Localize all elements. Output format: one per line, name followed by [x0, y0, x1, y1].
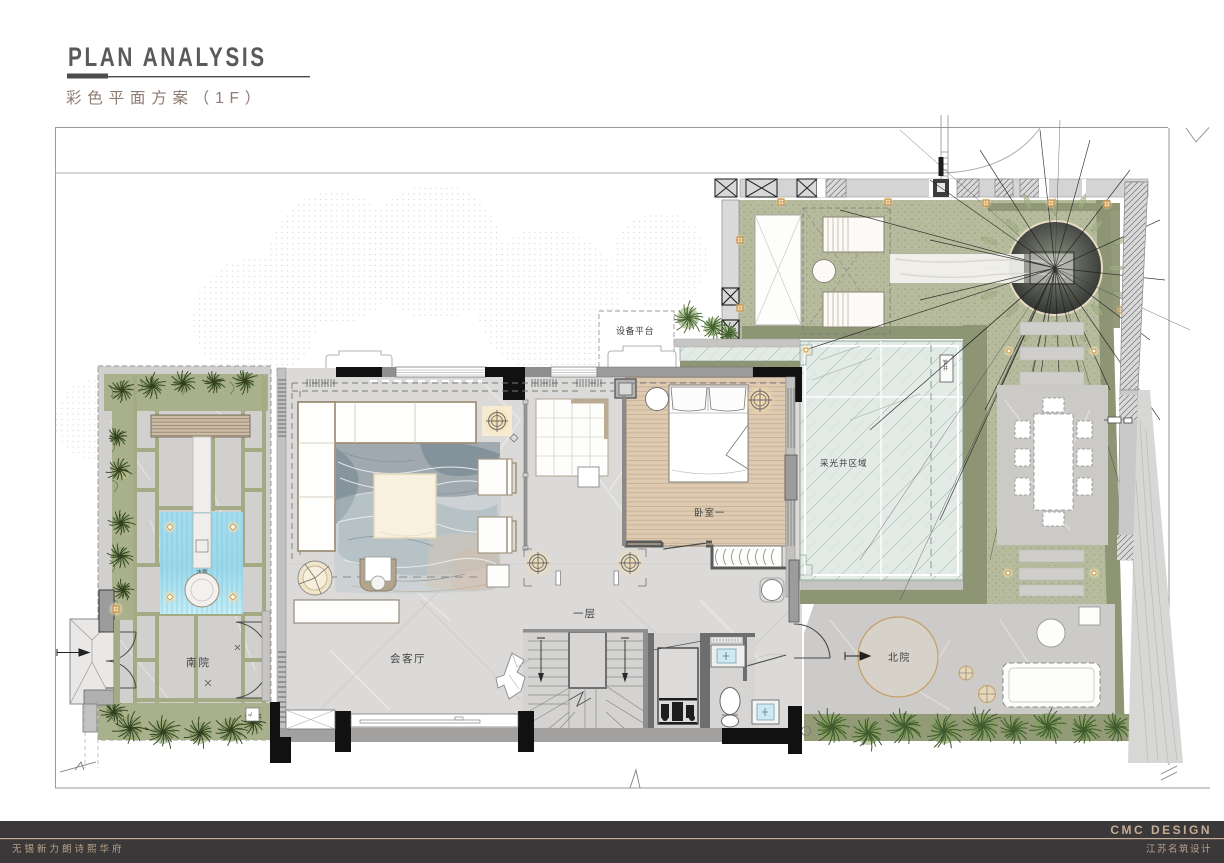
svg-text:PLAN ANALYSIS: PLAN ANALYSIS: [68, 42, 267, 72]
svg-text:井: 井: [943, 365, 948, 372]
svg-text:一层: 一层: [573, 608, 596, 620]
svg-text:南院: 南院: [186, 656, 211, 669]
svg-text:江苏名筑设计: 江苏名筑设计: [1146, 843, 1212, 855]
svg-text:会客厅: 会客厅: [390, 652, 426, 665]
svg-text:卧室一: 卧室一: [694, 507, 726, 519]
svg-text:设备平台: 设备平台: [616, 325, 654, 336]
svg-text:彩色平面方案（1F）: 彩色平面方案（1F）: [66, 89, 266, 107]
svg-text:无锡新力朗诗熙华府: 无锡新力朗诗熙华府: [12, 843, 125, 855]
svg-text:采光井区域: 采光井区域: [820, 458, 868, 468]
svg-text:北院: 北院: [888, 651, 911, 664]
svg-text:CMC DESIGN: CMC DESIGN: [1110, 823, 1212, 837]
